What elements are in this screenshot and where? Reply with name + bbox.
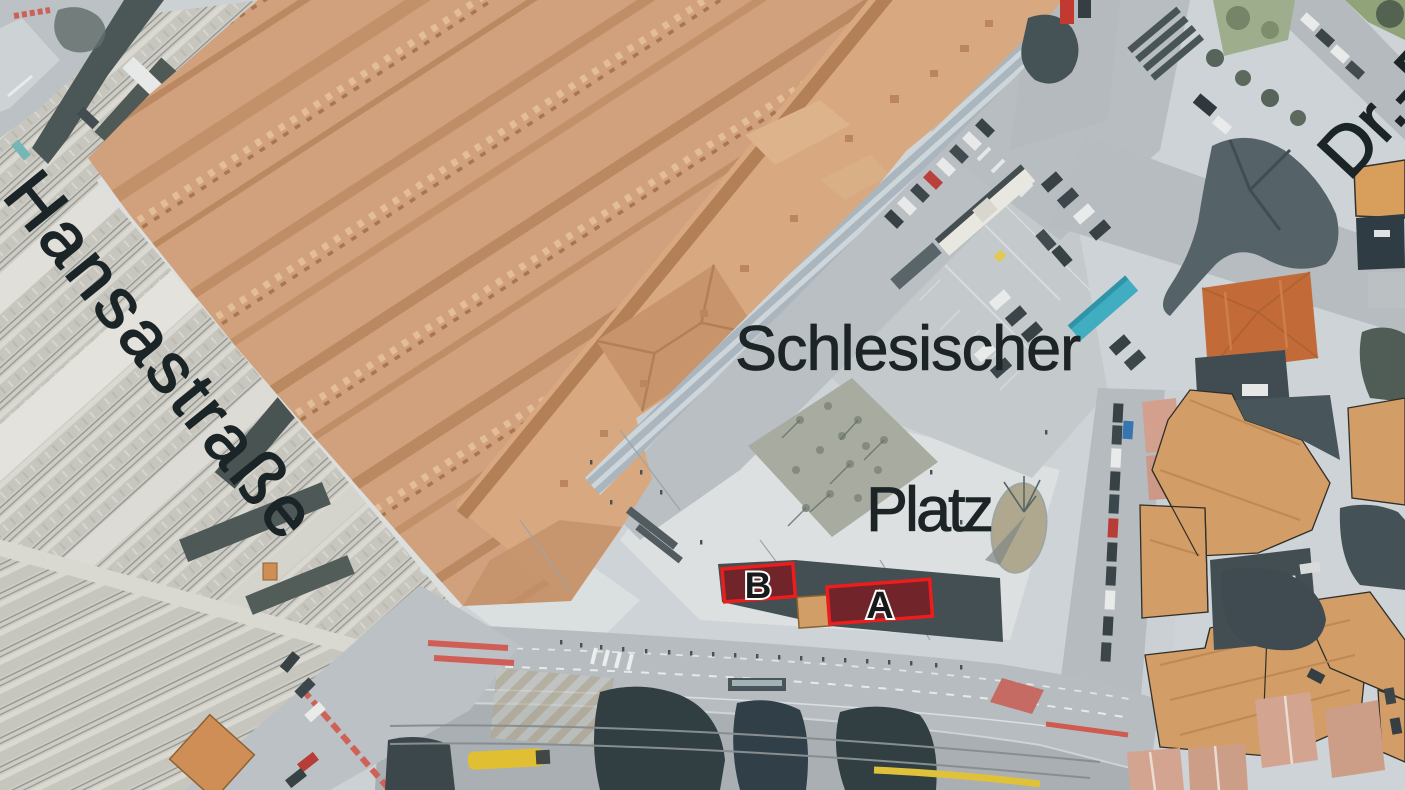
svg-text:Platz: Platz: [866, 475, 992, 545]
svg-text:Schlesischer: Schlesischer: [735, 314, 1080, 384]
